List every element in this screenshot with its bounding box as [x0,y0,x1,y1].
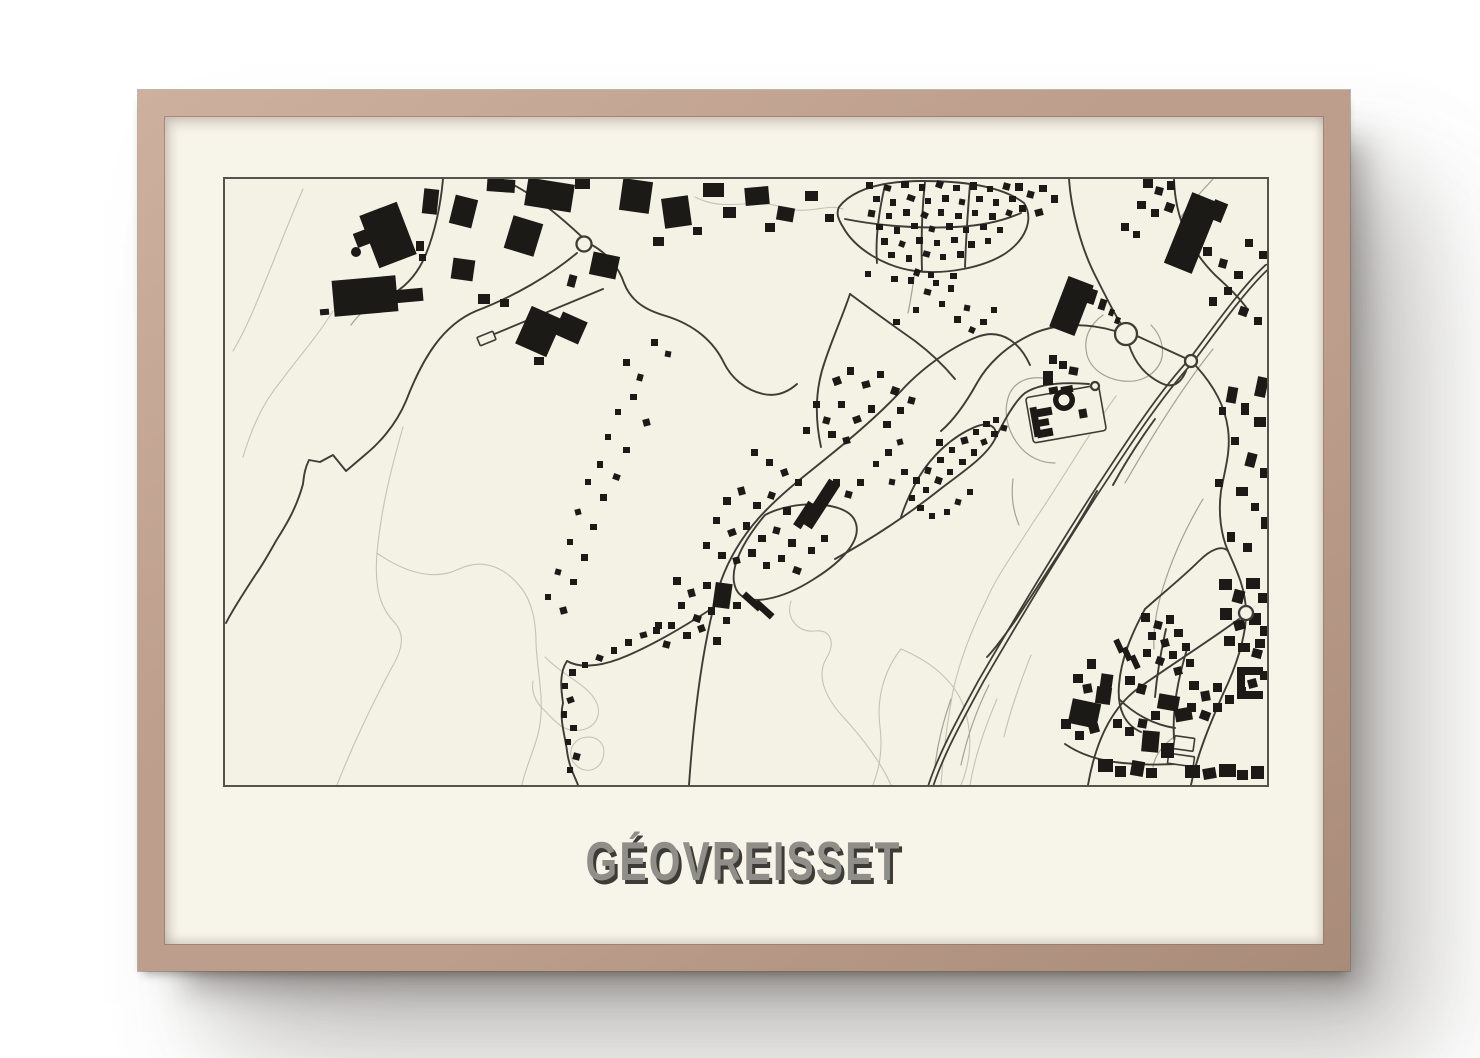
poster-title: GÉOVREISSET [586,834,902,889]
stadium-track-infield [1059,395,1070,406]
wall-background: GÉOVREISSET [0,0,1480,1058]
map-panel [223,177,1269,787]
poster-mat: GÉOVREISSET [165,117,1323,944]
minor-roads [351,179,1213,785]
roads [226,179,1248,785]
poster-frame: GÉOVREISSET [138,90,1350,971]
poster-caption: GÉOVREISSET [165,785,1323,937]
buildings [320,179,1267,780]
roundabouts [577,237,1254,621]
city-map [225,179,1267,785]
